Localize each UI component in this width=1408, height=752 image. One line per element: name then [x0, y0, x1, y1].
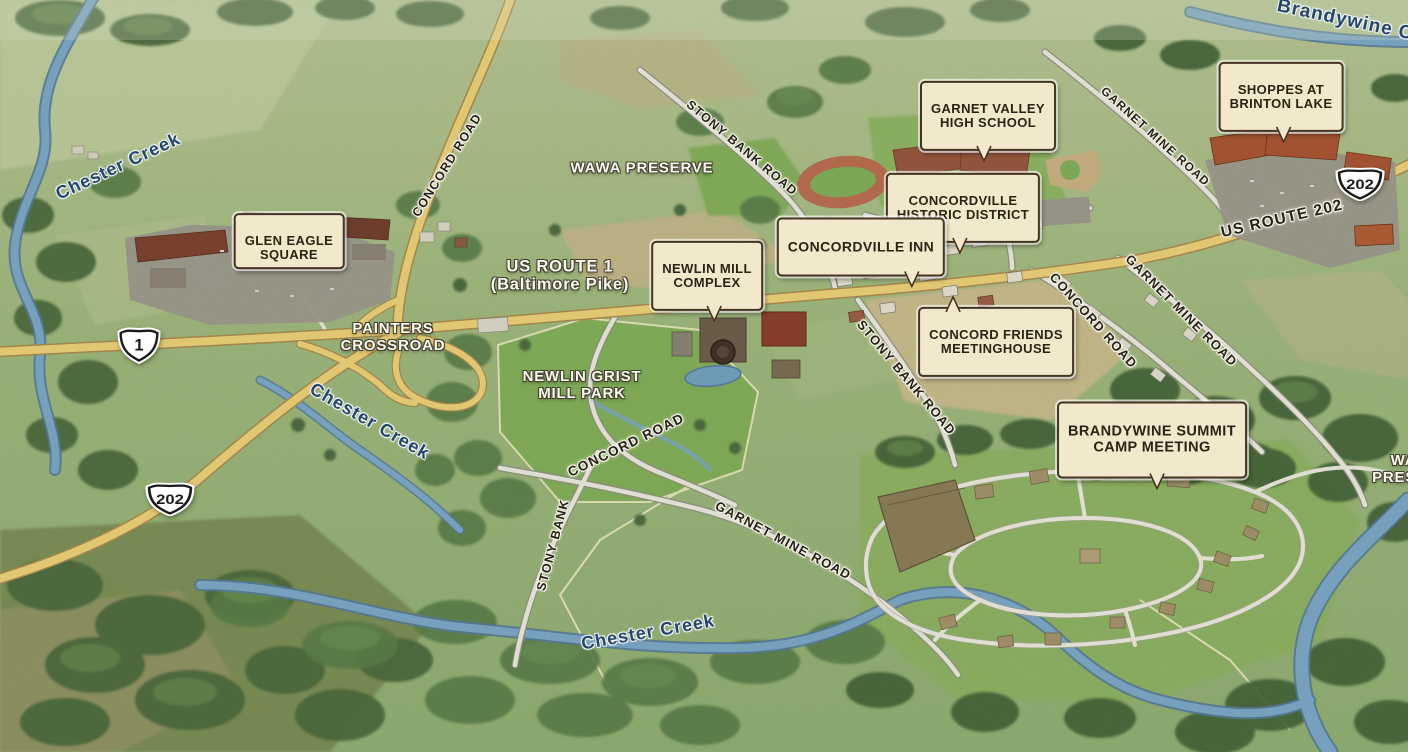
label-wawa-preserve: WAWA PRESERVE — [571, 161, 714, 178]
us-route-1-shield-number: 1 — [134, 336, 143, 354]
callout-shoppes-at-brinton-lake: SHOPPES AT BRINTON LAKE — [1219, 62, 1344, 132]
callout-garnet-valley-text: GARNET VALLEY HIGH SCHOOL — [931, 100, 1045, 130]
callout-newlin-mill-complex: NEWLIN MILL COMPLEX — [651, 241, 763, 311]
us-route-202-east-shield-number: 202 — [1346, 177, 1374, 192]
callout-glen-eagle-square: GLEN EAGLE SQUARE — [234, 213, 345, 269]
callout-tail-down-icon — [1148, 472, 1166, 489]
callout-concordville-inn: CONCORDVILLE INN — [777, 217, 945, 276]
callout-tail-up-icon — [944, 296, 962, 313]
label-newlin-grist-mill-park: NEWLIN GRIST MILL PARK — [523, 369, 642, 403]
callout-concord-friends-text: CONCORD FRIENDS MEETINGHOUSE — [929, 326, 1063, 356]
callout-tail-down-icon — [975, 145, 993, 162]
callout-tail-down-icon — [705, 305, 723, 322]
map-canvas[interactable]: Brandywine Cre Chester Creek Chester Cre… — [0, 0, 1408, 752]
callout-tail-down-icon — [1275, 126, 1293, 143]
us-route-1-shield-icon: 1 — [117, 324, 161, 364]
label-painters-crossroad: PAINTERS CROSSROAD — [341, 321, 446, 355]
callout-tail-down-icon — [903, 271, 921, 288]
us-route-202-west-shield-icon: 202 — [145, 480, 195, 516]
us-route-202-east-shield-icon: 202 — [1335, 165, 1385, 201]
callout-brandywine-summit-text: BRANDYWINE SUMMIT CAMP MEETING — [1068, 424, 1236, 456]
callout-garnet-valley-high-school: GARNET VALLEY HIGH SCHOOL — [920, 81, 1056, 151]
us-route-202-west-shield-number: 202 — [156, 492, 184, 507]
callout-brandywine-summit-camp-meeting: BRANDYWINE SUMMIT CAMP MEETING — [1057, 402, 1247, 479]
callout-concordville-inn-text: CONCORDVILLE INN — [788, 238, 934, 254]
label-us-route-1: US ROUTE 1 (Baltimore Pike) — [491, 258, 629, 295]
callout-concord-friends-meetinghouse: CONCORD FRIENDS MEETINGHOUSE — [918, 307, 1074, 377]
callout-tail-down-icon — [951, 237, 969, 254]
label-wawa-preserve-edge: WAWA PRESERVE — [1372, 453, 1408, 487]
callout-newlin-mill-text: NEWLIN MILL COMPLEX — [662, 260, 752, 290]
callout-shoppes-text: SHOPPES AT BRINTON LAKE — [1230, 81, 1333, 111]
callout-glen-eagle-square-text: GLEN EAGLE SQUARE — [245, 233, 334, 263]
